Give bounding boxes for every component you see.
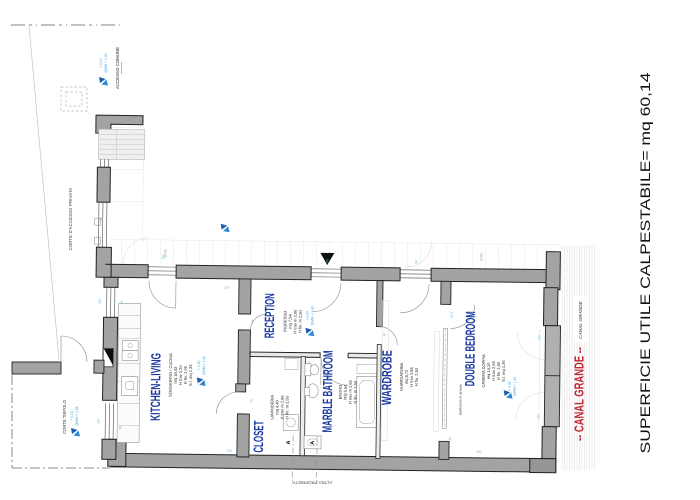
svg-text:CLOSET: CLOSET <box>251 420 266 453</box>
svg-text:95: 95 <box>120 300 124 304</box>
svg-text:60,5: 60,5 <box>450 311 454 317</box>
svg-text:H fin. m 2,50: H fin. m 2,50 <box>297 309 302 333</box>
svg-text:QWM + 1,40: QWM + 1,40 <box>202 356 206 375</box>
svg-text:QWM + 1,40: QWM + 1,40 <box>310 306 314 325</box>
svg-text:75: 75 <box>307 361 311 365</box>
svg-text:H fin. m 2,50: H fin. m 2,50 <box>284 395 289 419</box>
svg-text:372: 372 <box>224 286 229 290</box>
svg-text:90: 90 <box>99 217 103 221</box>
svg-text:partizione in arredo: partizione in arredo <box>458 384 462 415</box>
svg-text:+ 0,05: + 0,05 <box>508 381 512 391</box>
svg-text:392: 392 <box>476 450 481 454</box>
svg-text:+ 0,00: + 0,00 <box>197 361 201 371</box>
svg-text:60: 60 <box>448 436 452 440</box>
svg-text:110: 110 <box>536 414 540 419</box>
svg-text:DOUBLE BEDROOM: DOUBLE BEDROOM <box>462 311 478 386</box>
svg-text:CORTE D'ACCESSO PRIVATA: CORTE D'ACCESSO PRIVATA <box>68 188 73 251</box>
svg-text:A: A <box>310 441 316 445</box>
svg-text:WARDROBE: WARDROBE <box>379 350 395 405</box>
svg-text:CORTE TIEPOLO: CORTE TIEPOLO <box>62 399 67 434</box>
svg-text:90: 90 <box>414 260 418 264</box>
svg-text:H fin. 2,50: H fin. 2,50 <box>414 367 419 386</box>
svg-text:QWM + 1,56: QWM + 1,56 <box>75 406 79 425</box>
svg-text:H fin. m 2,50: H fin. m 2,50 <box>353 380 358 404</box>
svg-text:378: 378 <box>226 449 231 453</box>
svg-text:A: A <box>286 440 292 444</box>
svg-text:-- CANAL GRANDE --: -- CANAL GRANDE -- <box>573 347 587 441</box>
svg-text:ALTRA PROPRIETA': ALTRA PROPRIETA' <box>291 480 332 485</box>
svg-text:RECEPTION: RECEPTION <box>262 293 278 338</box>
svg-text:+ 0,00: + 0,00 <box>99 58 103 68</box>
svg-text:QWM + 1,40: QWM + 1,40 <box>513 377 517 396</box>
svg-text:KITCHEN-LIVING: KITCHEN-LIVING <box>148 353 164 421</box>
svg-text:100: 100 <box>96 418 100 423</box>
svg-text:ACCESSO COMUNE: ACCESSO COMUNE <box>115 47 120 89</box>
svg-text:porta: porta <box>479 253 483 261</box>
svg-text:+ 0,13: + 0,13 <box>70 411 74 421</box>
svg-text:120: 120 <box>537 335 541 340</box>
svg-text:S.I. mq 2,33: S.I. mq 2,33 <box>188 364 193 386</box>
svg-text:95: 95 <box>118 425 122 429</box>
svg-text:80: 80 <box>382 333 386 337</box>
svg-text:QWM + 1,30: QWM + 1,30 <box>104 53 108 72</box>
svg-text:+ 0,00: + 0,00 <box>306 311 310 321</box>
svg-text:90: 90 <box>325 259 329 263</box>
svg-text:SUPERFICIE UTILE CALPESTABILE=: SUPERFICIE UTILE CALPESTABILE= mq 60,14 <box>637 72 653 453</box>
svg-text:120: 120 <box>98 298 102 303</box>
svg-text:80: 80 <box>251 319 255 323</box>
svg-text:180: 180 <box>161 254 165 259</box>
svg-text:MARBLE BATHROOM: MARBLE BATHROOM <box>320 350 336 432</box>
svg-text:S.I. mq 1,36: S.I. mq 1,36 <box>501 360 506 382</box>
svg-text:CANAL GRANDE: CANAL GRANDE <box>578 300 584 339</box>
svg-text:70: 70 <box>250 399 254 403</box>
